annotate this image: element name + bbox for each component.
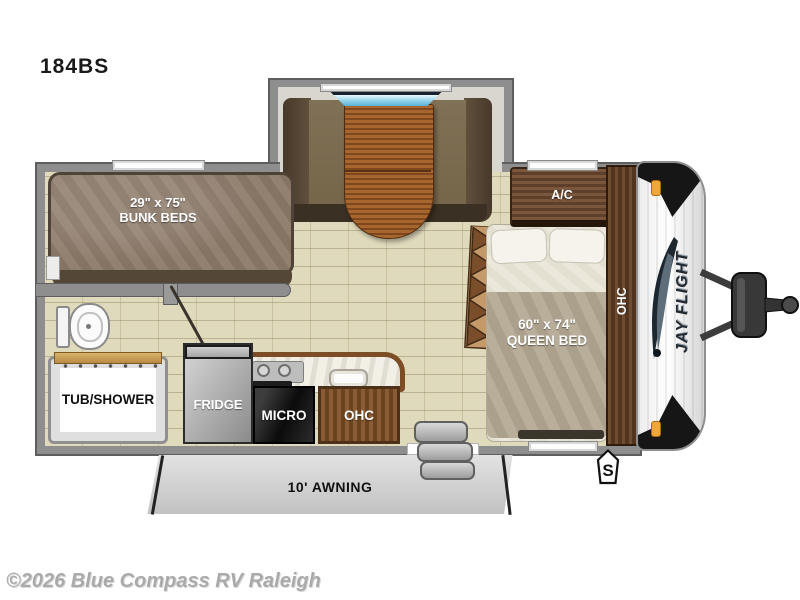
fridge-label: FRIDGE xyxy=(183,398,253,413)
toilet-flush xyxy=(86,324,91,329)
hitch-frame xyxy=(695,258,800,352)
bedroom-ohc-label: OHC xyxy=(615,261,629,341)
marker-light xyxy=(651,421,661,437)
spare-marker: S xyxy=(596,449,620,485)
bunk-name: BUNK BEDS xyxy=(119,210,196,225)
micro-label: MICRO xyxy=(253,408,315,424)
dinette-table-seam xyxy=(345,170,431,172)
spare-marker-letter: S xyxy=(602,461,613,480)
jayflight-logo: JAY FLIGHT xyxy=(674,217,694,387)
marker-light xyxy=(651,180,661,196)
fridge-top xyxy=(185,345,251,359)
bunk-size: 29" x 75" xyxy=(130,195,186,210)
queen-blanket xyxy=(487,292,607,438)
ac-label: A/C xyxy=(510,188,614,202)
awning-label: 10' AWNING xyxy=(240,479,420,495)
bunk-label: 29" x 75" BUNK BEDS xyxy=(78,196,238,226)
bed-footboard xyxy=(518,430,604,439)
dinette-window xyxy=(327,92,445,106)
tub-shelf xyxy=(54,352,162,364)
tub-label: TUB/SHOWER xyxy=(52,392,164,407)
stove-burner xyxy=(278,364,291,377)
toilet-tank xyxy=(56,306,70,348)
watermark: ©2026 Blue Compass RV Raleigh xyxy=(6,570,321,593)
window xyxy=(527,160,598,171)
pillow xyxy=(490,228,548,265)
bunk-step xyxy=(46,256,60,280)
curtain-hooks xyxy=(58,364,160,368)
pillow xyxy=(548,228,605,264)
queen-size: 60" x 74" xyxy=(518,317,576,332)
queen-name: QUEEN BED xyxy=(507,333,587,348)
window xyxy=(112,160,205,171)
floorplan-canvas: 184BS 10' AWNING 29" x 75" BUNK BEDS TUB… xyxy=(0,0,800,600)
entry-step xyxy=(417,442,473,462)
cap-accent-bottom xyxy=(638,395,704,449)
dinette-window-frame xyxy=(320,83,452,92)
window xyxy=(528,441,598,452)
hitch-ball xyxy=(782,297,798,313)
model-number: 184BS xyxy=(40,55,109,79)
stove-burner xyxy=(257,364,270,377)
queen-label: 60" x 74" QUEEN BED xyxy=(487,317,607,348)
entry-step xyxy=(420,461,475,480)
cap-accent-top xyxy=(638,163,704,217)
entry-step xyxy=(414,421,468,443)
kitchen-ohc-label: OHC xyxy=(318,408,400,424)
